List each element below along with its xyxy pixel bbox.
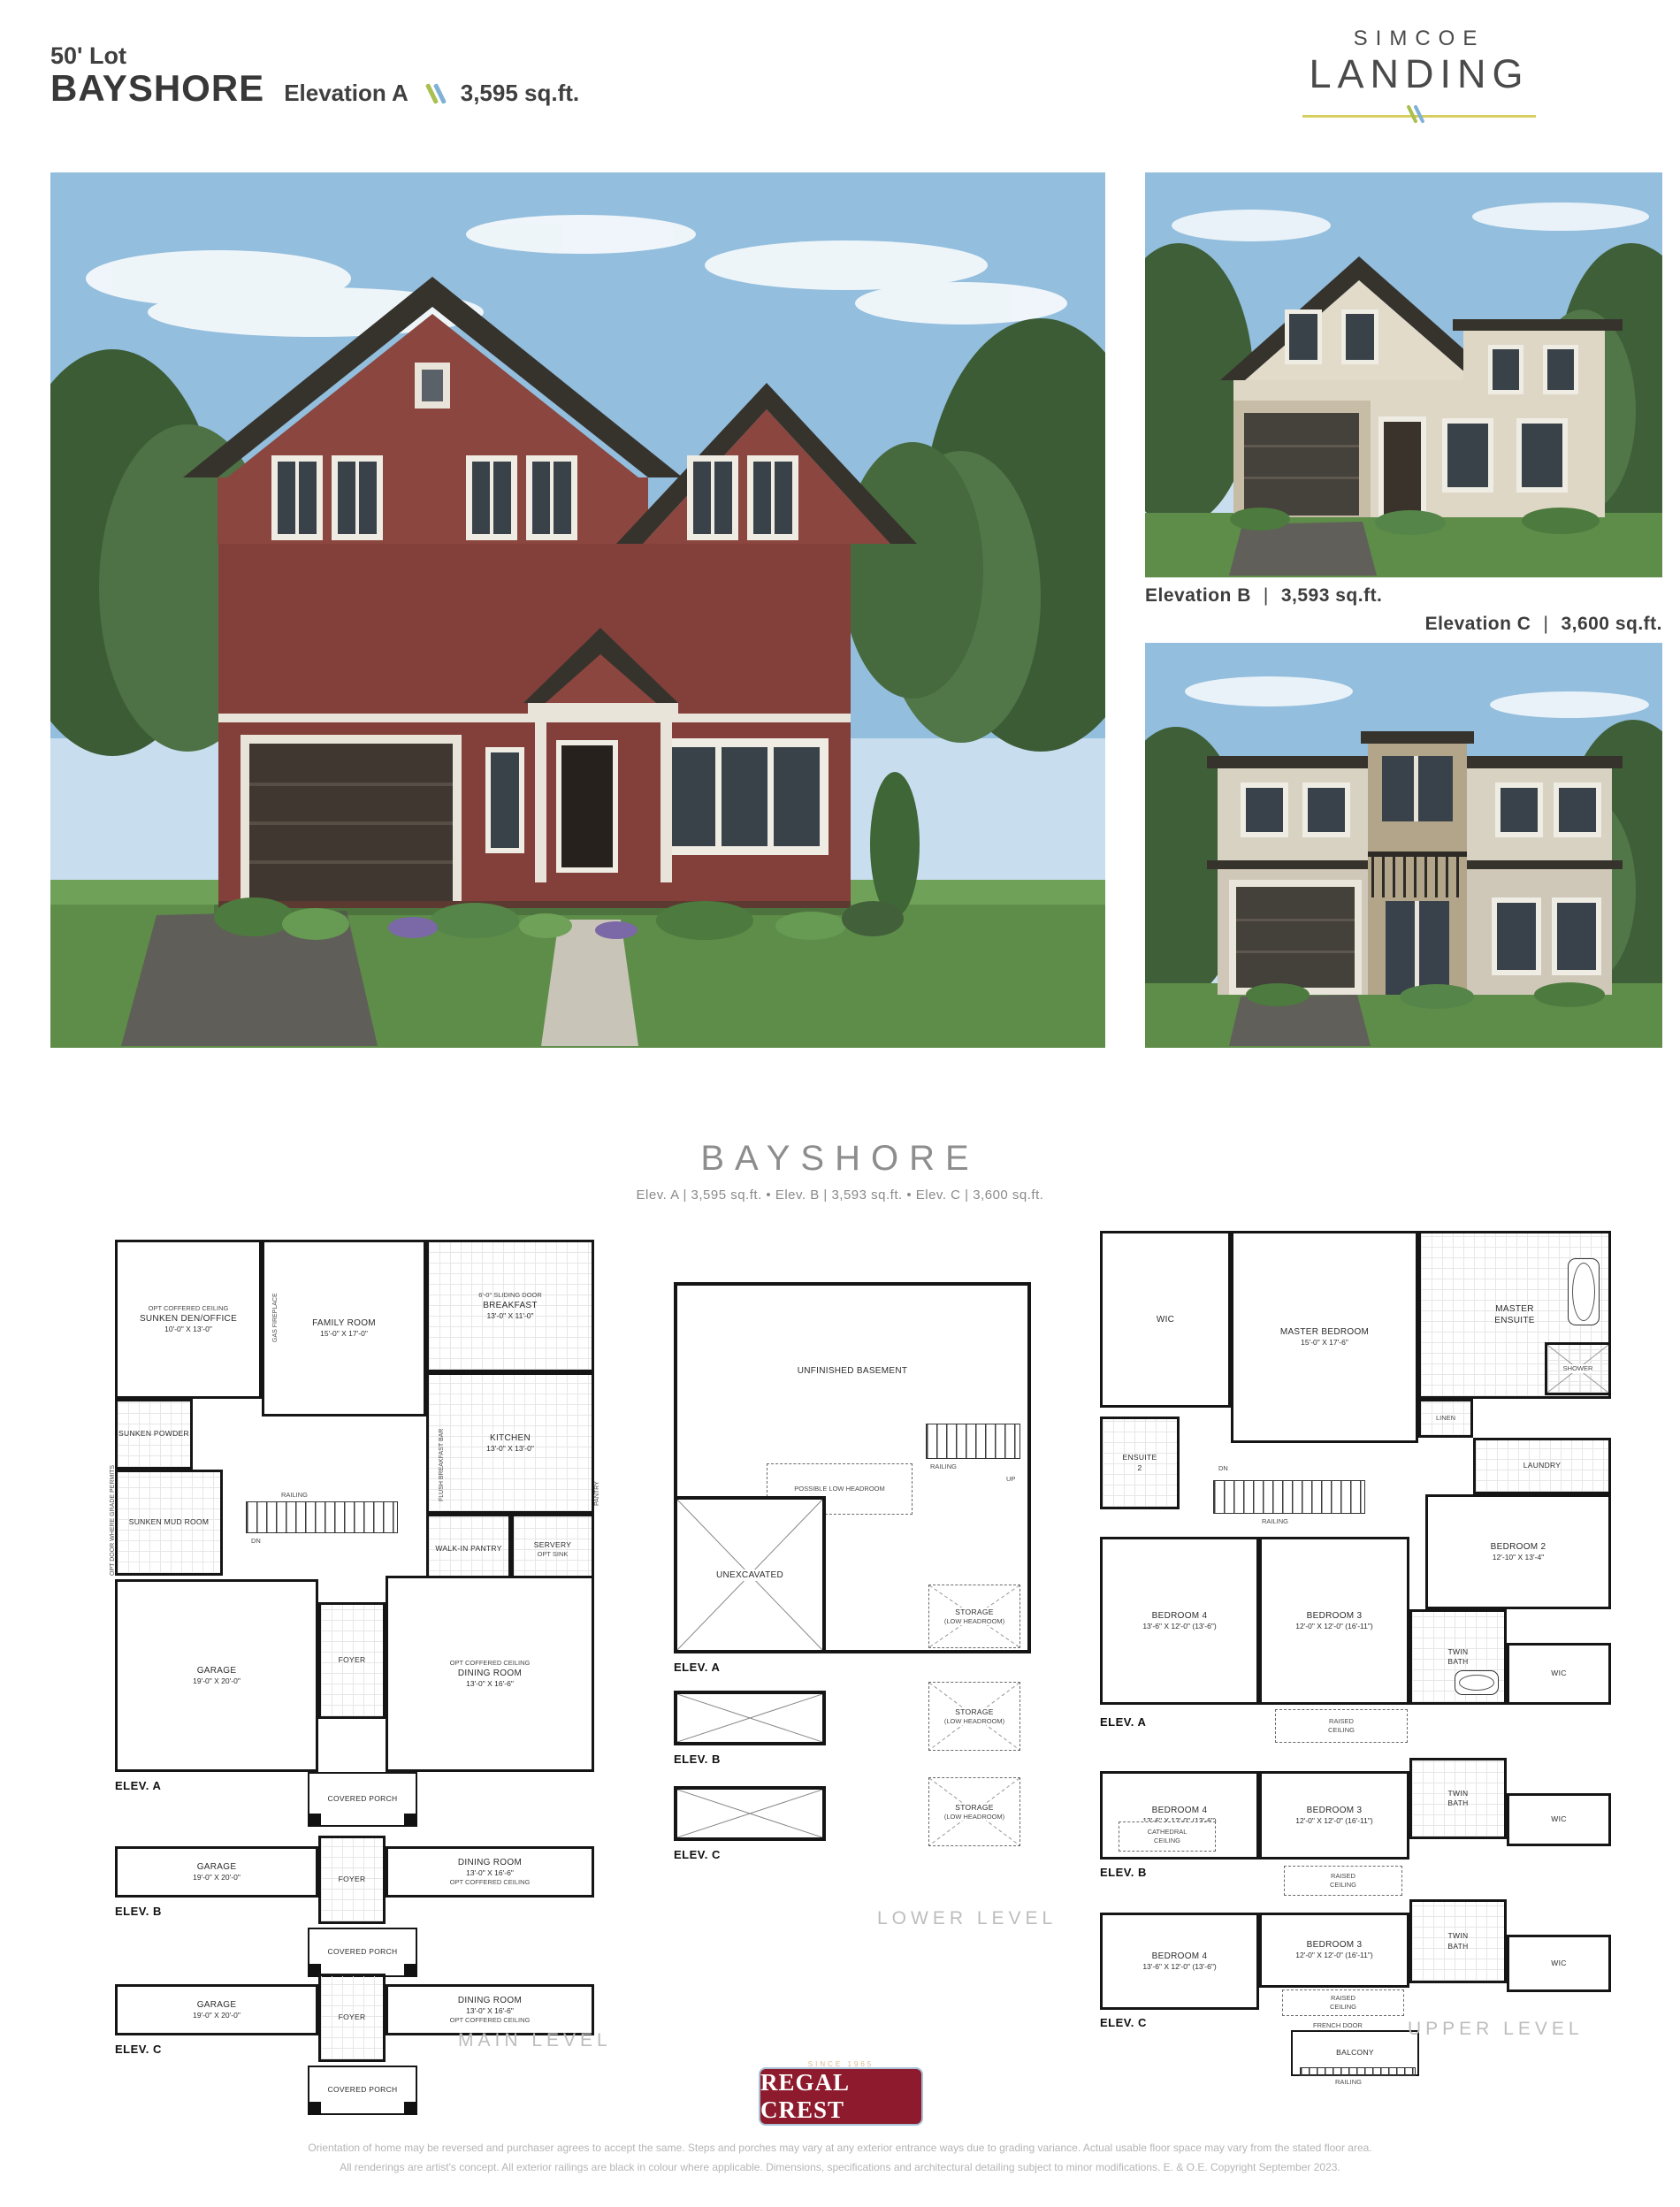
brand-underline (1287, 104, 1552, 127)
room-unexcavated-a: UNEXCAVATED (674, 1496, 826, 1653)
bathtub-icon (1455, 1670, 1499, 1695)
room-foyer-c: FOYER (318, 1974, 386, 2062)
regal-crest-name: REGAL CREST (760, 2069, 921, 2124)
balcony-railing (1300, 2067, 1416, 2076)
room-bedroom-4-a: BEDROOM 413'-6" X 12'-0" (13'-6") (1100, 1537, 1259, 1705)
room-sunken-powder: SUNKEN POWDER (115, 1399, 193, 1470)
lower-stairs-up: UP (1006, 1475, 1015, 1483)
main-stairs-dn: DN (251, 1537, 261, 1545)
room-twin-bath-c: TWIN BATH (1409, 1899, 1507, 1983)
upper-level-plan: WIC MASTER BEDROOM15'-0" X 17'-6" MASTER… (1098, 1227, 1613, 2081)
room-family-room: FAMILY ROOM15'-0" X 17'-0" (262, 1240, 426, 1417)
bathtub-icon (1568, 1258, 1600, 1325)
room-sunken-mud-room: SUNKEN MUD ROOM (115, 1470, 223, 1576)
plan-section-title: BAYSHORE Elev. A | 3,595 sq.ft. • Elev. … (398, 1139, 1282, 1203)
room-unexcavated-c (674, 1786, 826, 1841)
plan-section-subtitle: Elev. A | 3,595 sq.ft. • Elev. B | 3,593… (398, 1188, 1282, 1203)
note-raised-ceiling-c: RAISEDCEILING (1282, 1989, 1404, 2016)
balcony-railing-label: RAILING (1335, 2078, 1362, 2086)
room-shower: SHOWER (1545, 1342, 1611, 1395)
note-raised-ceiling-a: RAISEDCEILING (1275, 1709, 1408, 1743)
main-elev-a-label: ELEV. A (115, 1779, 161, 1792)
room-wic-2-a: WIC (1507, 1643, 1611, 1705)
elevation-c-rendering (1145, 643, 1662, 1048)
room-storage-b: STORAGE (LOW HEADROOM) (928, 1682, 1020, 1751)
room-servery: SERVERYOPT SINK (511, 1514, 594, 1585)
room-wic-2-c: WIC (1507, 1935, 1611, 1992)
lot-size-label: 50' Lot (50, 42, 126, 70)
note-raised-ceiling-b: RAISEDCEILING (1284, 1866, 1402, 1896)
main-level-label: MAIN LEVEL (458, 2030, 612, 2051)
note-opt-door-grade: OPT DOOR WHERE GRADE PERMITS (110, 1465, 116, 1576)
room-unexcavated-b (674, 1691, 826, 1745)
lower-stairs (926, 1424, 1020, 1459)
model-name: BAYSHORE (50, 67, 264, 109)
room-covered-porch-c: COVERED PORCH (308, 2066, 417, 2115)
room-foyer-a: FOYER (318, 1602, 386, 1719)
room-balcony: BALCONY (1291, 2030, 1419, 2076)
lower-level-label: LOWER LEVEL (877, 1908, 1057, 1929)
room-dining-b: DINING ROOM13'-0" X 16'-6" OPT COFFERED … (386, 1846, 594, 1898)
elevation-b-caption: Elevation B|3,593 sq.ft. (1145, 585, 1382, 607)
note-pantry: PANTRY (594, 1481, 600, 1506)
room-bedroom-3-c: BEDROOM 312'-0" X 12'-0" (16'-11") (1259, 1913, 1409, 1988)
room-bedroom-2: BEDROOM 212'-10" X 13'-4" (1425, 1494, 1611, 1609)
lower-elev-c-label: ELEV. C (674, 1848, 721, 1861)
main-stairs (246, 1501, 398, 1533)
disclaimer: Orientation of home may be reversed and … (221, 2138, 1459, 2177)
lower-elev-b-label: ELEV. B (674, 1753, 721, 1766)
regal-crest-homes: HOMES (808, 2125, 873, 2134)
room-walkin-pantry: WALK-IN PANTRY (426, 1514, 511, 1585)
slash-accent-icon (428, 89, 444, 104)
elevation-a-rendering (50, 172, 1105, 1048)
disclaimer-line-2: All renderings are artist's concept. All… (221, 2157, 1459, 2177)
room-twin-bath-b: TWIN BATH (1409, 1758, 1507, 1839)
lower-elev-a-label: ELEV. A (674, 1661, 720, 1674)
simcoe-landing-logo: SIMCOE LANDING (1287, 27, 1552, 127)
sqft-label: 3,595 sq.ft. (461, 80, 579, 106)
room-sunken-den-office: OPT COFFERED CEILING SUNKEN DEN/OFFICE10… (115, 1240, 262, 1399)
room-master-bedroom: MASTER BEDROOM15'-0" X 17'-6" (1231, 1231, 1418, 1443)
upper-level-label: UPPER LEVEL (1408, 2019, 1584, 2040)
upper-elev-b-label: ELEV. B (1100, 1866, 1147, 1879)
brand-bottom-text: LANDING (1287, 51, 1552, 97)
room-laundry: LAUNDRY (1473, 1438, 1611, 1494)
room-storage-c: STORAGE (LOW HEADROOM) (928, 1777, 1020, 1846)
room-kitchen: KITCHEN13'-0" X 13'-0" (426, 1372, 594, 1514)
room-breakfast: 6'-0" SLIDING DOOR BREAKFAST13'-0" X 11'… (426, 1240, 594, 1372)
brand-slash-icon (1409, 104, 1423, 125)
room-bedroom-3-a: BEDROOM 312'-0" X 12'-0" (16'-11") (1259, 1537, 1409, 1705)
note-flush-breakfast-bar: FLUSH BREAKFAST BAR (439, 1429, 445, 1501)
main-railing-label: RAILING (281, 1491, 308, 1499)
disclaimer-line-1: Orientation of home may be reversed and … (221, 2138, 1459, 2157)
room-bedroom-4-c: BEDROOM 413'-6" X 12'-0" (13'-6") (1100, 1913, 1259, 2010)
upper-elev-c-label: ELEV. C (1100, 2016, 1147, 2029)
brand-top-text: SIMCOE (1287, 27, 1552, 51)
upper-stairs (1213, 1480, 1365, 1514)
lower-railing-label: RAILING (930, 1462, 957, 1470)
brochure-page: { "header": { "lot": "50' Lot", "model":… (0, 0, 1680, 2207)
room-wic-2-b: WIC (1507, 1793, 1611, 1846)
note-french-door: FRENCH DOOR (1313, 2021, 1363, 2029)
room-wic-master: WIC (1100, 1231, 1231, 1408)
note-gas-fireplace: GAS FIREPLACE (272, 1293, 279, 1342)
main-level-plan: OPT COFFERED CEILING SUNKEN DEN/OFFICE10… (113, 1236, 598, 2120)
room-ensuite-2: ENSUITE 2 (1100, 1417, 1180, 1509)
room-covered-porch-b: COVERED PORCH (308, 1928, 417, 1977)
lower-level-plan: UNFINISHED BASEMENT POSSIBLE LOW HEADROO… (665, 1256, 1040, 1963)
room-linen: LINEN (1418, 1399, 1473, 1438)
room-garage-a: GARAGE19'-0" X 20'-0" (115, 1579, 318, 1772)
room-covered-porch-a: COVERED PORCH (308, 1772, 417, 1827)
main-elev-b-label: ELEV. B (115, 1905, 162, 1918)
room-storage-a: STORAGE (LOW HEADROOM) (928, 1585, 1020, 1648)
regal-crest-since: SINCE 1965 (808, 2060, 874, 2068)
room-garage-c: GARAGE19'-0" X 20'-0" (115, 1984, 318, 2035)
room-foyer-b: FOYER (318, 1836, 386, 1924)
elevation-b-rendering (1145, 172, 1662, 577)
room-dining-a: OPT COFFERED CEILING DINING ROOM13'-0" X… (386, 1576, 594, 1772)
main-elev-c-label: ELEV. C (115, 2043, 162, 2056)
elevation-c-caption: Elevation C|3,600 sq.ft. (1425, 614, 1662, 635)
upper-stairs-dn: DN (1218, 1464, 1228, 1472)
room-bedroom-3-b: BEDROOM 312'-0" X 12'-0" (16'-11") (1259, 1771, 1409, 1860)
upper-elev-a-label: ELEV. A (1100, 1715, 1146, 1729)
room-twin-bath-a: TWIN BATH (1409, 1609, 1507, 1705)
model-title-row: BAYSHOREElevation A 3,595 sq.ft. (50, 67, 579, 110)
room-dining-c: DINING ROOM13'-0" X 16'-6" OPT COFFERED … (386, 1984, 594, 2035)
regal-crest-logo: SINCE 1965 REGAL CREST HOMES (759, 2067, 923, 2126)
elevation-label: Elevation A (284, 80, 409, 106)
upper-railing-label: RAILING (1262, 1517, 1288, 1525)
room-bedroom-4-b: BEDROOM 413'-6" X 12'-0" (13'-6") CATHED… (1100, 1771, 1259, 1860)
note-cathedral-ceiling: CATHEDRALCEILING (1119, 1821, 1216, 1852)
room-garage-b: GARAGE19'-0" X 20'-0" (115, 1846, 318, 1898)
